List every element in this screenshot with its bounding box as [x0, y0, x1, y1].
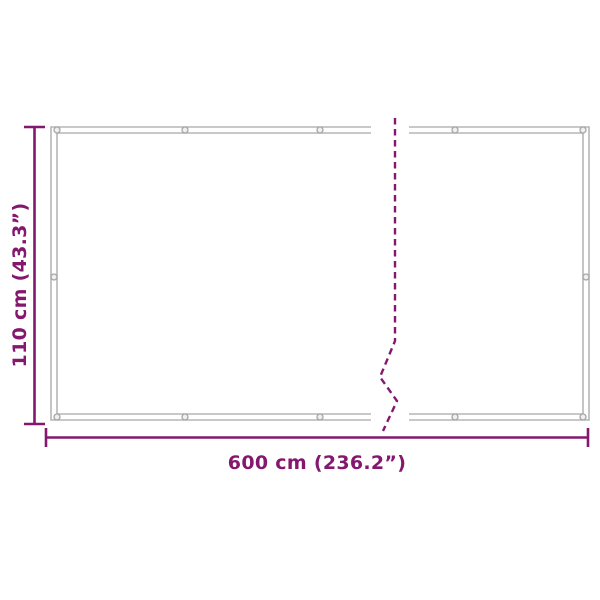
grommet-icon: [452, 414, 458, 420]
grommet-icon: [182, 127, 188, 133]
grommet-icon: [54, 127, 60, 133]
product-dimension-image: 110 cm (43.3”) 600 cm (236.2”): [0, 0, 600, 600]
grommet-icon: [583, 274, 589, 280]
break-dashed-line: [380, 118, 397, 431]
height-dimension-label: 110 cm (43.3”): [9, 135, 31, 435]
frame-outer-left: [51, 127, 371, 420]
grommet-icon: [182, 414, 188, 420]
grommets: [51, 127, 589, 420]
width-dimension-label: 600 cm (236.2”): [46, 452, 588, 474]
frame-inner-left: [57, 133, 371, 414]
grommet-icon: [580, 414, 586, 420]
grommet-icon: [452, 127, 458, 133]
grommet-icon: [54, 414, 60, 420]
grommet-icon: [317, 127, 323, 133]
break-mark: [380, 118, 397, 431]
grommet-icon: [51, 274, 57, 280]
frame-inner-right: [409, 133, 583, 414]
frame-outer-right: [409, 127, 589, 420]
grommet-icon: [317, 414, 323, 420]
width-dimension-line: [46, 428, 588, 447]
tarp-frame: [51, 127, 589, 420]
dimension-diagram: [0, 0, 600, 600]
grommet-icon: [580, 127, 586, 133]
